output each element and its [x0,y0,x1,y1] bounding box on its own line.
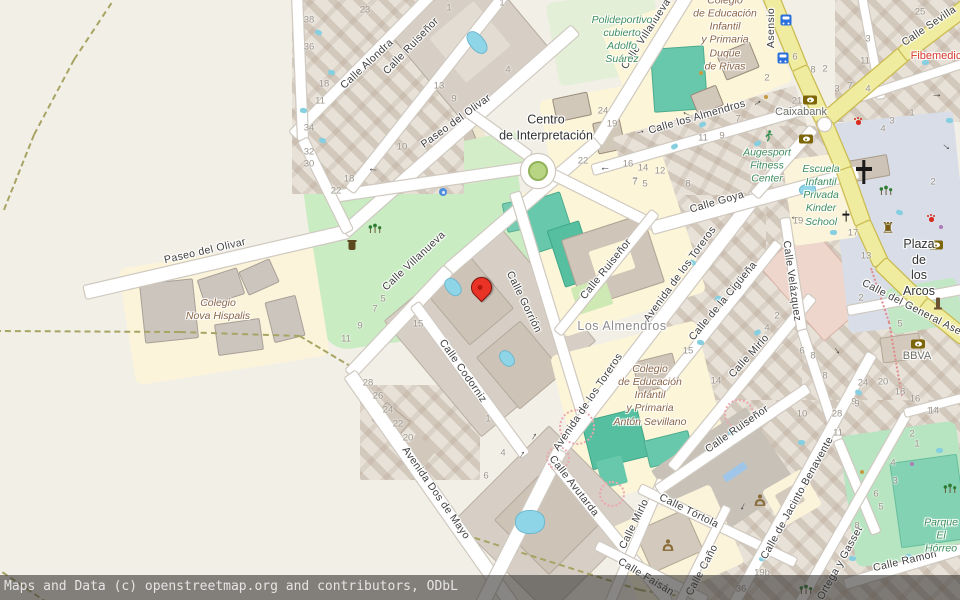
street-label: Asensio [765,8,777,48]
house-number: 3 [892,476,897,487]
nova-building5 [214,318,264,356]
house-number: 3 [889,116,894,127]
fountain-icon [439,188,447,196]
footpath [3,134,35,210]
house-number: 15 [683,346,694,357]
place-label: Parque El Hórreo [924,516,958,555]
house-number: 8 [854,521,859,532]
house-number: 13 [434,81,445,92]
roundabout-olivar-island [528,161,548,181]
house-number: 24 [383,405,394,416]
house-number: 7 [632,177,637,188]
church-icon [842,211,849,222]
house-number: 5 [878,502,883,513]
house-number: 5 [897,319,902,330]
paw-icon [853,116,863,126]
paw-icon [926,213,936,223]
house-number: 11 [315,96,325,107]
castle-icon: ♜ [881,219,894,237]
house-number: 15 [413,319,424,330]
place-label: Centro de Interpretación [499,112,593,143]
house-number: 6 [483,471,488,482]
house-number: 24 [598,106,609,117]
oneway-arrow: → [600,164,611,176]
house-number: 14 [638,163,649,174]
house-number: 20 [878,377,889,388]
house-number: 26 [373,391,384,402]
house-number: 8 [685,179,690,190]
house-number: 8 [810,351,815,362]
house-number: 30 [304,159,315,170]
trees-icon [367,224,383,235]
house-number: 28 [832,409,843,420]
house-number: 2 [764,73,769,84]
place-label: Colegio Nova Hispalis [186,297,250,323]
place-label: Fibemedic [911,50,960,64]
place-label: Los Almendros [577,319,666,335]
house-number: 2 [822,64,827,75]
house-number: 4 [500,448,505,459]
house-number: 9 [854,399,859,410]
trees-icon [942,484,958,495]
bank-icon [799,135,813,144]
house-number: 20 [403,433,414,444]
house-number: 18 [344,174,355,185]
poi-dot [860,470,864,474]
house-number: 2 [858,293,863,304]
house-number: 11 [341,334,351,345]
house-number: 11 [833,428,843,439]
poi-dot [910,462,914,466]
footpath [73,0,118,60]
place-label: Plaza de los Arcos [899,237,940,300]
house-number: 14 [711,376,722,387]
house-number: 1 [485,414,490,425]
worship-icon [753,493,767,507]
house-number: 21 [792,96,803,107]
place-label: Colegio de Educación Infantil y Primaria… [693,0,757,73]
attribution-bar: Maps and Data (c) openstreetmap.org and … [0,575,960,600]
place-label: Escuela Infantil Privada Kinder School [802,163,839,229]
house-number: 10 [397,142,408,153]
place-label: Polideportivo cubierto Adolfo Suárez [592,14,653,67]
poi-dot [939,225,943,229]
house-number: 24 [858,378,869,389]
house-number: 17 [848,228,859,239]
house-number: 28 [363,378,374,389]
small-pool [830,230,837,235]
house-number: 6 [792,52,797,63]
house-number: 7 [847,81,852,92]
small-pool [300,107,308,113]
house-number: 19 [607,119,618,130]
house-number: 34 [304,123,315,134]
house-number: 22 [578,156,589,167]
house-number: 12 [655,166,666,177]
place-label: Augesport Fitness Center [743,146,791,185]
house-number: 8 [822,371,827,382]
house-number: 1 [446,3,451,14]
house-number: 13 [861,251,872,262]
oneway-arrow: → [367,165,379,178]
house-number: 4 [505,65,510,76]
house-number: 10 [797,409,808,420]
bank-icon [803,96,817,105]
bin-icon [349,242,356,250]
house-number: 9 [357,321,362,332]
house-number: 9 [451,94,456,105]
house-number: 22 [331,186,342,197]
poi-dot [764,95,768,99]
house-number: 3 [865,34,870,45]
house-number: 5 [642,179,647,190]
small-pool [946,118,954,124]
small-pool [798,440,805,445]
trees-icon [878,186,894,197]
house-number: 18 [319,79,330,90]
house-number: 22 [393,419,404,430]
house-number: 6 [799,346,804,357]
house-number: 11 [698,133,708,144]
house-number: 38 [304,15,315,26]
playground-outline [599,481,625,507]
house-number: 16 [910,394,921,405]
house-number: 3 [834,84,839,95]
place-label: Colegio de Educación Infántil y Primaria… [614,363,687,429]
house-number: 1 [499,0,504,9]
place-label: Caixabank [775,106,827,120]
swimming-pool [515,510,545,534]
footpath [33,59,75,135]
bank-icon [911,340,925,349]
bus-icon [781,15,792,26]
house-number: 1 [914,439,919,450]
house-number: 25 [915,7,926,18]
worship-icon [661,538,675,552]
house-number: 14 [929,406,940,417]
footpath [0,330,180,333]
house-number: 2 [930,177,935,188]
house-number: 8 [810,65,815,76]
runner-icon [762,130,775,143]
house-number: 4 [764,323,769,334]
house-number: 5 [380,294,385,305]
house-number: 4 [865,84,870,95]
house-number: 18 [895,387,906,398]
map-canvas[interactable]: ♜→→→→→→→→→→→→Calle RuiseñorCalle Alondra… [0,0,960,600]
oneway-arrow: → [932,88,943,100]
small-pool [936,448,943,453]
map-screenshot: ♜→→→→→→→→→→→→Calle RuiseñorCalle Alondra… [0,0,960,600]
house-number: 23 [360,5,371,16]
house-number: 6 [873,489,878,500]
house-number: 4 [880,124,885,135]
house-number: 11 [860,56,870,67]
place-label: BBVA [903,350,932,364]
house-number: 9 [719,131,724,142]
house-number: 1 [909,108,914,119]
house-number: 36 [304,42,315,53]
house-number: 16 [623,159,634,170]
house-number: 32 [304,147,315,158]
bus-icon [778,53,789,64]
house-number: 4 [890,458,895,469]
house-number: 2 [774,311,779,322]
house-number: 7 [735,114,740,125]
church-icon [856,160,872,184]
house-number: 7 [372,304,377,315]
